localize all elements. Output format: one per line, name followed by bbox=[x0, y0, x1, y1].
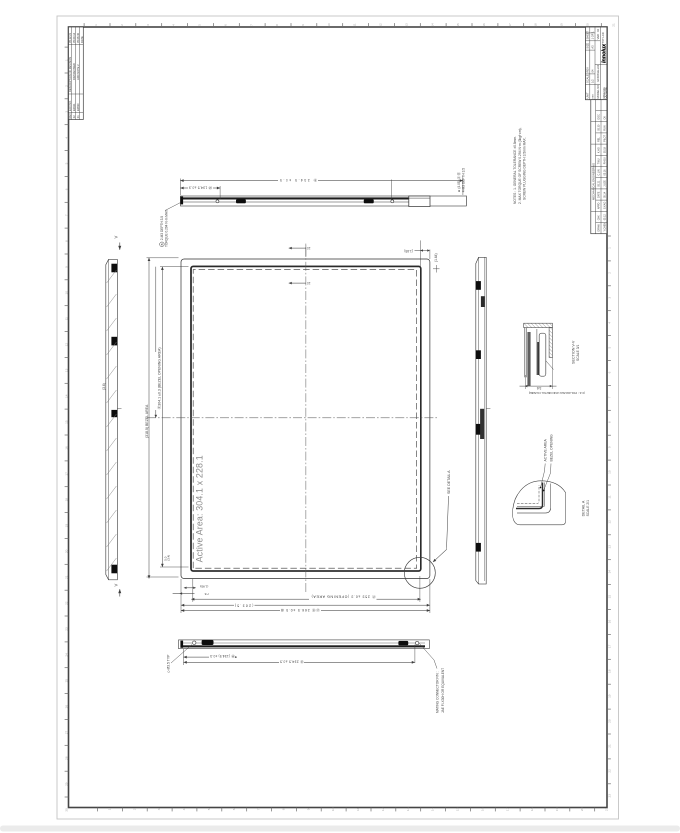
svg-text:Ⓜ 134.5 ±0.3: Ⓜ 134.5 ±0.3 bbox=[189, 185, 212, 190]
svg-text:DATE: DATE bbox=[598, 191, 601, 198]
svg-text:⊕ (4.05) Ⓐ Ⓑ: ⊕ (4.05) Ⓐ Ⓑ bbox=[456, 171, 461, 192]
svg-text:5: 5 bbox=[64, 162, 68, 164]
svg-text:15: 15 bbox=[456, 23, 460, 27]
svg-text:NOTES : 1. GENERAL TOLERANCE ±: NOTES : 1. GENERAL TOLERANCE ±0.5mm. bbox=[513, 136, 517, 204]
svg-text:RUN: RUN bbox=[603, 125, 606, 130]
svg-text:10: 10 bbox=[307, 246, 311, 250]
svg-text:UNIT: UNIT bbox=[586, 92, 590, 98]
svg-text:8: 8 bbox=[64, 240, 68, 242]
svg-text:SCALE: SCALE bbox=[586, 74, 590, 83]
svg-text:BEZEL OPENING: BEZEL OPENING bbox=[549, 434, 553, 462]
svg-text:J.LEE: J.LEE bbox=[603, 180, 606, 187]
svg-text:05.16: 05.16 bbox=[603, 169, 606, 176]
svg-text:4-M3 DEPTH 3.5: 4-M3 DEPTH 3.5 bbox=[461, 168, 465, 192]
svg-text:1: 1 bbox=[607, 247, 611, 249]
svg-text:S.KAO: S.KAO bbox=[603, 202, 606, 209]
svg-text:V: V bbox=[114, 584, 119, 587]
svg-text:4: 4 bbox=[182, 808, 186, 810]
svg-text:SCALE 2/1: SCALE 2/1 bbox=[586, 500, 590, 516]
svg-text:11: 11 bbox=[64, 317, 68, 320]
svg-text:(318.5) BEZEL AREA: (318.5) BEZEL AREA bbox=[145, 404, 149, 438]
svg-text:14: 14 bbox=[430, 23, 434, 27]
svg-text:TORQUE 0.294 N·m MAX: TORQUE 0.294 N·m MAX bbox=[164, 209, 168, 247]
svg-text:ADD NOTE 2: ADD NOTE 2 bbox=[76, 64, 80, 80]
svg-text:13: 13 bbox=[607, 545, 611, 549]
svg-text:21: 21 bbox=[607, 744, 611, 748]
svg-text:23: 23 bbox=[64, 627, 68, 631]
svg-text:13: 13 bbox=[64, 368, 68, 372]
svg-text:DRAW: DRAW bbox=[598, 224, 601, 232]
svg-text:18: 18 bbox=[607, 669, 611, 673]
svg-text:10: 10 bbox=[607, 470, 611, 474]
svg-text:12: 12 bbox=[607, 520, 611, 524]
svg-text:7: 7 bbox=[257, 808, 261, 810]
svg-text:CHK: CHK bbox=[598, 215, 601, 220]
svg-text:6: 6 bbox=[64, 188, 68, 190]
svg-text:MATING CONNECTOR P/N :: MATING CONNECTOR P/N : bbox=[436, 671, 440, 713]
svg-text:3.6: 3.6 bbox=[537, 386, 542, 390]
svg-text:17: 17 bbox=[505, 807, 509, 811]
svg-text:E0921: E0921 bbox=[72, 103, 76, 111]
svg-text:18: 18 bbox=[64, 498, 68, 502]
svg-text:mm: mm bbox=[592, 94, 595, 98]
svg-text:10: 10 bbox=[307, 281, 311, 285]
svg-text:12: 12 bbox=[379, 23, 383, 27]
svg-text:1: 1 bbox=[64, 59, 68, 61]
svg-text:OUTLINE: OUTLINE bbox=[603, 87, 607, 99]
svg-text:ACTIVE AREA: ACTIVE AREA bbox=[544, 439, 548, 462]
svg-text:7.5: 7.5 bbox=[204, 592, 209, 596]
svg-text:05.21: 05.21 bbox=[598, 180, 601, 187]
svg-text:4: 4 bbox=[172, 24, 176, 26]
svg-text:12: 12 bbox=[381, 807, 385, 811]
svg-text:16: 16 bbox=[64, 446, 68, 450]
svg-text:05.14: 05.14 bbox=[603, 191, 606, 198]
svg-text:27: 27 bbox=[64, 731, 68, 735]
svg-text:1: 1 bbox=[94, 24, 98, 26]
svg-text:20: 20 bbox=[64, 549, 68, 553]
svg-text:7: 7 bbox=[607, 396, 611, 398]
svg-text:17: 17 bbox=[607, 644, 611, 648]
svg-text:19: 19 bbox=[64, 524, 68, 528]
svg-text:B: B bbox=[160, 243, 164, 245]
svg-text:1: 1 bbox=[108, 808, 112, 810]
svg-text:APPD: APPD bbox=[598, 202, 601, 209]
svg-text:15: 15 bbox=[456, 807, 460, 811]
svg-text:12: 12 bbox=[64, 343, 68, 347]
svg-text:6: 6 bbox=[607, 371, 611, 373]
svg-text:Y.CHEN: Y.CHEN bbox=[603, 223, 606, 232]
svg-text:8: 8 bbox=[275, 24, 279, 26]
svg-text:TFT LCD: TFT LCD bbox=[601, 32, 605, 43]
svg-text:6: 6 bbox=[223, 24, 227, 26]
svg-text:18: 18 bbox=[534, 23, 538, 27]
svg-text:15: 15 bbox=[64, 420, 68, 424]
svg-text:E0830: E0830 bbox=[76, 103, 80, 111]
svg-text:K.HO: K.HO bbox=[598, 147, 601, 153]
svg-text:SHEET: SHEET bbox=[586, 30, 590, 39]
svg-text:05.12.21: 05.12.21 bbox=[68, 32, 72, 43]
svg-text:19: 19 bbox=[555, 807, 559, 811]
svg-text:2. MAX TORQUE OF SCREW 0.294 N: 2. MAX TORQUE OF SCREW 0.294 N·m (3kgf·c… bbox=[518, 127, 522, 204]
svg-text:VER : 04: VER : 04 bbox=[596, 28, 600, 39]
svg-text:V: V bbox=[114, 236, 119, 239]
svg-text:22: 22 bbox=[607, 769, 611, 773]
svg-text:(3.4): (3.4) bbox=[167, 555, 171, 561]
svg-text:4: 4 bbox=[64, 137, 68, 139]
svg-text:DIM REVISED: DIM REVISED bbox=[72, 63, 76, 80]
svg-text:5: 5 bbox=[207, 808, 211, 810]
svg-text:9: 9 bbox=[306, 808, 310, 810]
svg-text:9: 9 bbox=[301, 24, 305, 26]
svg-text:16: 16 bbox=[607, 620, 611, 624]
svg-text:05.08.30: 05.08.30 bbox=[76, 32, 80, 43]
svg-text:11: 11 bbox=[607, 495, 611, 498]
svg-text:3: 3 bbox=[157, 808, 161, 810]
svg-text:20: 20 bbox=[585, 23, 589, 27]
svg-text:2: 2 bbox=[132, 808, 136, 810]
svg-text:17: 17 bbox=[64, 472, 68, 476]
svg-text:10: 10 bbox=[327, 23, 331, 27]
svg-text:14: 14 bbox=[607, 570, 611, 574]
svg-text:10: 10 bbox=[64, 291, 68, 295]
svg-text:Innolux: Innolux bbox=[601, 43, 607, 63]
svg-text:13: 13 bbox=[406, 807, 410, 811]
svg-text:A3: A3 bbox=[591, 45, 595, 49]
svg-text:(1.85): (1.85) bbox=[404, 249, 413, 253]
svg-text:8: 8 bbox=[282, 808, 286, 810]
svg-text:2: 2 bbox=[120, 24, 124, 26]
svg-text:22: 22 bbox=[64, 601, 68, 605]
svg-text:05.09.14: 05.09.14 bbox=[72, 32, 76, 43]
svg-text:REV: REV bbox=[68, 113, 72, 119]
svg-text:PILOT: PILOT bbox=[603, 134, 606, 141]
svg-text:SIZE: SIZE bbox=[586, 43, 590, 49]
svg-text:16: 16 bbox=[480, 807, 484, 811]
svg-text:9: 9 bbox=[64, 266, 68, 268]
svg-text:(1.85): (1.85) bbox=[200, 585, 208, 589]
svg-text:26: 26 bbox=[64, 705, 68, 709]
svg-text:T.WU: T.WU bbox=[598, 158, 601, 164]
svg-text:23: 23 bbox=[607, 794, 611, 798]
svg-text:(0.6 : POLARIZER AND METAL FRA: (0.6 : POLARIZER AND METAL FRAME) bbox=[529, 391, 585, 395]
svg-text:16: 16 bbox=[482, 23, 486, 27]
svg-text:SCALE 3/1: SCALE 3/1 bbox=[576, 345, 580, 361]
svg-text:28: 28 bbox=[64, 756, 68, 760]
svg-text:P.HSU: P.HSU bbox=[603, 157, 606, 164]
svg-text:25: 25 bbox=[64, 679, 68, 683]
svg-text:SCREW PLUGGING DEPTH 3.5mm MAX: SCREW PLUGGING DEPTH 3.5mm MAX. bbox=[523, 137, 527, 200]
svg-text:21: 21 bbox=[611, 23, 615, 27]
svg-text:15: 15 bbox=[607, 595, 611, 599]
svg-text:REL: REL bbox=[598, 137, 601, 142]
svg-text:DOC: DOC bbox=[598, 114, 601, 120]
svg-text:5: 5 bbox=[607, 346, 611, 348]
svg-text:3: 3 bbox=[607, 297, 611, 299]
svg-text:(1.64): (1.64) bbox=[434, 253, 438, 262]
svg-text:ⒶⒷ 266.5 ±0.5 ⊞: ⒶⒷ 266.5 ±0.5 ⊞ bbox=[281, 608, 320, 613]
svg-text:18: 18 bbox=[530, 807, 534, 811]
svg-text:30: 30 bbox=[64, 808, 68, 812]
svg-text:4: 4 bbox=[607, 322, 611, 324]
svg-text:DESCRIPTION OF REVISION: DESCRIPTION OF REVISION bbox=[68, 57, 72, 92]
svg-text:20: 20 bbox=[607, 719, 611, 723]
svg-text:5: 5 bbox=[198, 24, 202, 26]
svg-text:MODEL NO. : G150XGE-L04: MODEL NO. : G150XGE-L04 bbox=[596, 64, 600, 98]
svg-text:11: 11 bbox=[356, 808, 360, 811]
svg-text:C.LIN: C.LIN bbox=[598, 169, 601, 175]
svg-text:(3.6): (3.6) bbox=[102, 383, 106, 390]
svg-text:05.18: 05.18 bbox=[603, 146, 606, 153]
svg-text:Active Area: 304.1 x 228.1: Active Area: 304.1 x 228.1 bbox=[194, 455, 204, 562]
svg-text:13: 13 bbox=[404, 23, 408, 27]
svg-text:2: 2 bbox=[607, 272, 611, 274]
svg-text:REV: REV bbox=[586, 67, 590, 73]
svg-text:9: 9 bbox=[607, 446, 611, 448]
svg-text:1 OF 1: 1 OF 1 bbox=[591, 31, 595, 39]
svg-text:3: 3 bbox=[64, 111, 68, 113]
svg-text:29: 29 bbox=[64, 782, 68, 786]
svg-text:ECN NO.: ECN NO. bbox=[68, 100, 72, 111]
svg-text:20: 20 bbox=[580, 807, 584, 811]
svg-text:6: 6 bbox=[232, 808, 236, 810]
svg-text:11: 11 bbox=[353, 23, 357, 26]
svg-text:JAE FI-X30H OR EQUIVALENT: JAE FI-X30H OR EQUIVALENT bbox=[441, 668, 445, 713]
svg-text:Ⓟ304.1 ±0.3 (BEZEL OPENING ARE: Ⓟ304.1 ±0.3 (BEZEL OPENING AREA) bbox=[157, 347, 162, 409]
svg-text:24: 24 bbox=[64, 653, 68, 657]
svg-text:14: 14 bbox=[431, 807, 435, 811]
svg-text:7: 7 bbox=[249, 24, 253, 26]
svg-text:7: 7 bbox=[64, 214, 68, 216]
svg-text:(263.5): (263.5) bbox=[235, 603, 254, 607]
svg-text:21: 21 bbox=[64, 575, 68, 579]
svg-text:21: 21 bbox=[605, 807, 609, 811]
svg-text:17: 17 bbox=[508, 23, 512, 27]
svg-text:8: 8 bbox=[607, 421, 611, 423]
svg-text:Ⓟ 253 ±0.3 (OPENING AREA): Ⓟ 253 ±0.3 (OPENING AREA) bbox=[312, 595, 376, 600]
svg-text:Ⓑ 234.5 ±0.5: Ⓑ 234.5 ±0.5 bbox=[280, 659, 304, 664]
svg-text:Ⓜ (134.5) ±0.3: Ⓜ (134.5) ±0.3 bbox=[210, 654, 235, 659]
svg-text:2: 2 bbox=[64, 85, 68, 87]
svg-text:14: 14 bbox=[64, 394, 68, 398]
svg-text:10: 10 bbox=[331, 807, 335, 811]
svg-text:3: 3 bbox=[146, 24, 150, 26]
svg-text:DATE: DATE bbox=[80, 36, 84, 43]
svg-text:MECHANICAL ENGINEERING: MECHANICAL ENGINEERING bbox=[591, 163, 595, 200]
svg-text:19: 19 bbox=[607, 694, 611, 698]
svg-text:19: 19 bbox=[560, 23, 564, 27]
svg-text:05.12: 05.12 bbox=[603, 214, 606, 221]
svg-text:SEE DETAIL A: SEE DETAIL A bbox=[447, 470, 451, 494]
svg-text:05.30: 05.30 bbox=[598, 124, 601, 131]
svg-text:OK: OK bbox=[603, 116, 606, 120]
svg-text:◇ Ø3.5 TYP: ◇ Ø3.5 TYP bbox=[166, 654, 170, 673]
svg-text:1/2: 1/2 bbox=[591, 79, 595, 83]
